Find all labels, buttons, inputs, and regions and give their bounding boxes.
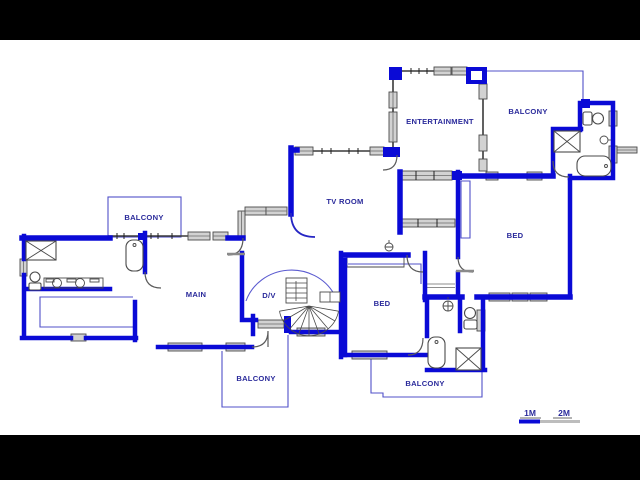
stair-flight — [286, 278, 307, 303]
room-label-dv: D/V — [262, 291, 276, 300]
shower-center — [456, 348, 481, 370]
scale-label-2m: 2M — [558, 408, 570, 418]
tv-west-wall — [291, 148, 297, 214]
scale-label-1m: 1M — [524, 408, 536, 418]
main-closet-outline — [40, 297, 133, 327]
room-label-balcony-bottom-right: BALCONY — [405, 379, 444, 388]
bed-right-wardrobe — [461, 181, 470, 238]
tv-room-door-arc — [291, 213, 315, 237]
main-room-walls — [158, 253, 256, 347]
vanity-double-basin — [44, 278, 103, 288]
room-label-bed-center: BED — [374, 299, 391, 308]
bed-center-bath-door-arc — [408, 338, 423, 355]
hall-low-window — [425, 284, 455, 288]
room-label-bed-right: BED — [507, 231, 524, 240]
shower-main — [26, 241, 56, 260]
corridor-post — [452, 171, 462, 180]
balcony-top-right-outline — [487, 71, 583, 100]
main-bath-door-arc — [145, 272, 161, 288]
entertainment-hollow-post-inner — [471, 71, 482, 80]
shower-top-right — [554, 131, 580, 152]
room-label-balcony-top-right: BALCONY — [508, 107, 547, 116]
room-label-balcony-bottom-center: BALCONY — [236, 374, 275, 383]
floor-plan-canvas: ENTERTAINMENT BALCONY BALCONY TV ROOM BE… — [0, 0, 640, 480]
room-label-tv-room: TV ROOM — [326, 197, 363, 206]
bed-center-wardrobe — [347, 257, 404, 267]
wall-post — [138, 233, 146, 240]
room-label-entertainment: ENTERTAINMENT — [406, 117, 474, 126]
entertainment-door-arc — [383, 155, 397, 170]
balcony-outlines — [40, 71, 583, 407]
room-label-balcony-top-left: BALCONY — [124, 213, 163, 222]
light-symbol — [385, 240, 393, 251]
basin-top-right — [600, 136, 611, 144]
bath-notch-post — [581, 99, 590, 108]
toilet-center — [464, 308, 477, 330]
toilet-top-right — [583, 112, 604, 125]
bathtub-center — [428, 337, 445, 368]
bathtub-top-right — [577, 156, 611, 176]
scale-segment-gray — [540, 420, 580, 423]
toilet-main — [29, 272, 41, 290]
scale-segment-blue — [519, 420, 540, 424]
room-label-main: MAIN — [186, 290, 206, 299]
scale-bar: 1M 2M — [519, 408, 580, 424]
entertainment-corner-post — [389, 67, 402, 80]
floor-plan-screenshot: ENTERTAINMENT BALCONY BALCONY TV ROOM BE… — [0, 0, 640, 480]
bathtub-main — [126, 240, 143, 271]
